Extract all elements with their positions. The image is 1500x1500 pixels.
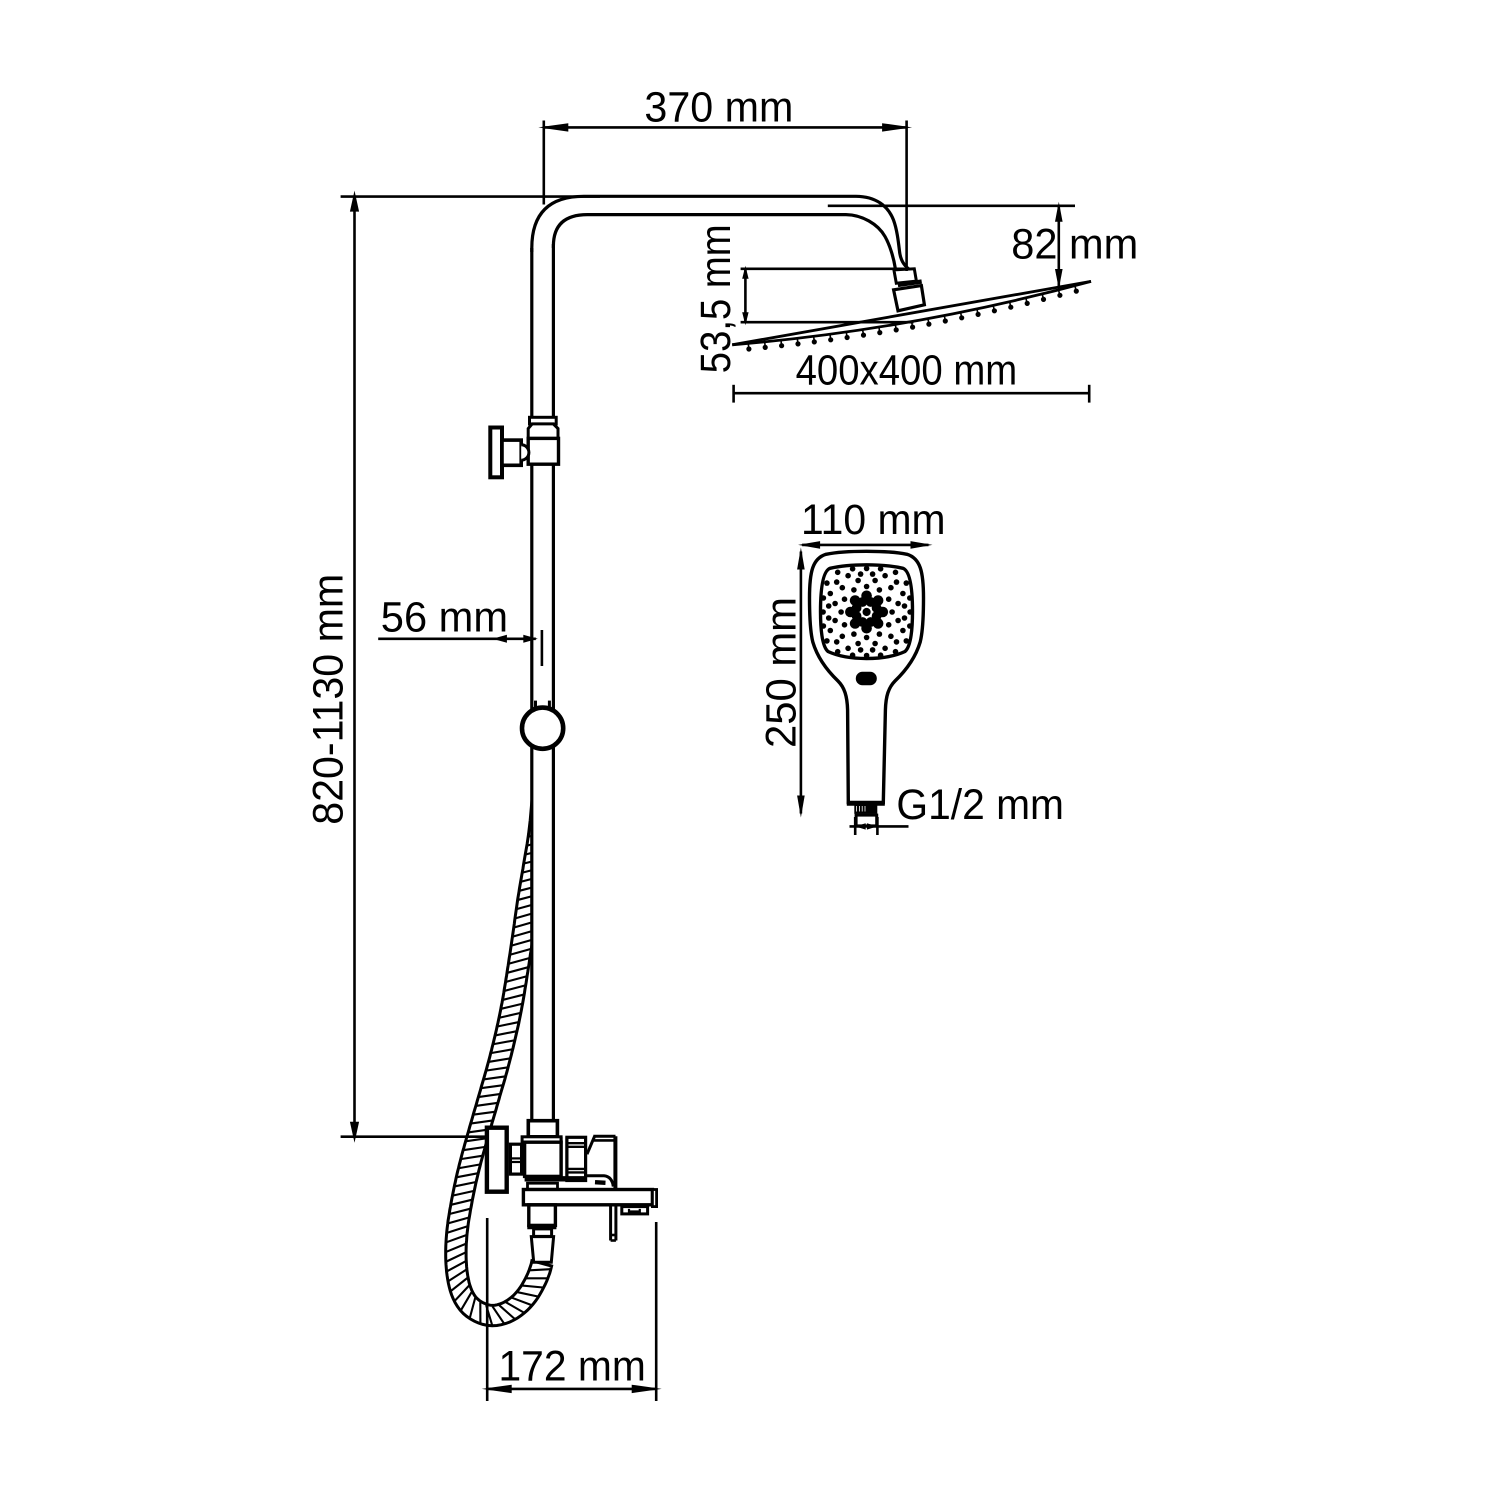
svg-text:82 mm: 82 mm — [1011, 221, 1138, 269]
svg-text:172 mm: 172 mm — [499, 1342, 646, 1390]
svg-text:370 mm: 370 mm — [644, 83, 793, 131]
svg-text:250 mm: 250 mm — [758, 597, 806, 748]
svg-text:53,5 mm: 53,5 mm — [692, 224, 740, 373]
svg-text:G1/2 mm: G1/2 mm — [896, 781, 1064, 829]
svg-text:56 mm: 56 mm — [381, 594, 508, 642]
svg-text:820-1130 mm: 820-1130 mm — [305, 574, 353, 825]
svg-text:400x400 mm: 400x400 mm — [796, 346, 1018, 394]
svg-text:110 mm: 110 mm — [801, 496, 946, 544]
